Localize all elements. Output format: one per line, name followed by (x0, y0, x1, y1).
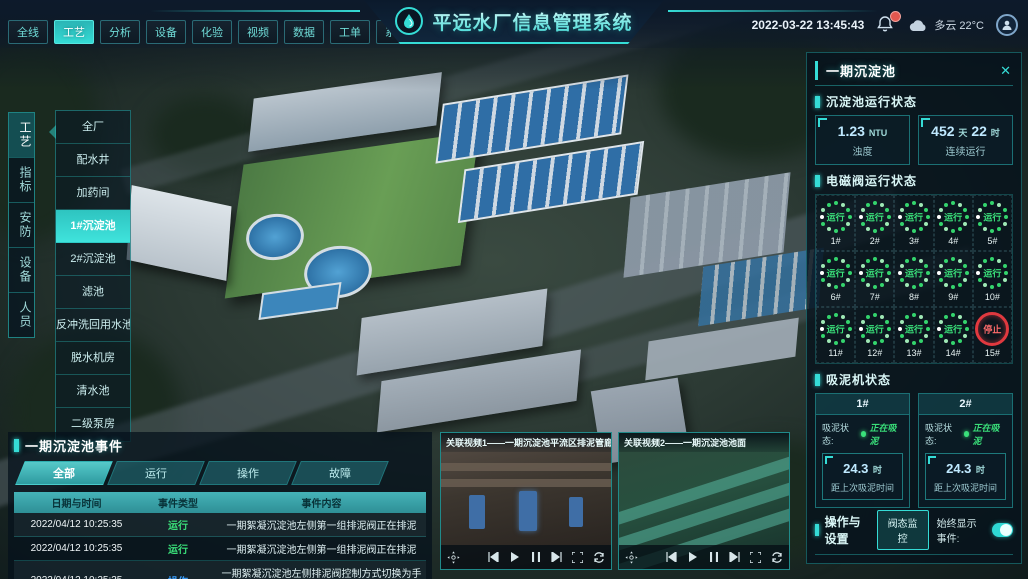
submenu-item-active[interactable]: 1#沉淀池 (56, 210, 130, 243)
suction-hours: 24.3 (946, 461, 971, 476)
valve-indicator-15: 停止15# (973, 307, 1012, 363)
skip-back-icon[interactable] (665, 551, 678, 564)
play-icon[interactable] (508, 551, 521, 564)
turbidity-label: 浊度 (820, 143, 905, 158)
section-valves: 电磁阀运行状态 (815, 172, 1013, 189)
submenu-item[interactable]: 清水池 (56, 375, 130, 408)
panel-title: 一期沉淀池 (815, 61, 896, 80)
thumb-detail (519, 491, 537, 531)
play-icon[interactable] (686, 551, 699, 564)
toggle-knob (1000, 524, 1012, 536)
suction-status-label: 吸泥状态: (925, 421, 961, 447)
table-row[interactable]: 2022/04/12 10:25:35 运行 一期絮凝沉淀池左侧第一组排泥阀正在… (14, 513, 426, 537)
ptz-dpad-icon[interactable] (625, 551, 638, 564)
submenu-item[interactable]: 全厂 (56, 111, 130, 144)
suction-timer-card: 24.3 时 距上次吸泥时间 (925, 453, 1006, 500)
top-right-cluster: 2022-03-22 13:45:43 多云 22°C (752, 14, 1018, 36)
uptime-days: 452 (931, 123, 954, 139)
nav-huayan[interactable]: 化验 (192, 20, 232, 44)
video-title: 关联视频1——一期沉淀池平流区排泥管廊 (441, 433, 611, 452)
nav-shuju[interactable]: 数据 (284, 20, 324, 44)
pause-icon[interactable] (529, 551, 542, 564)
side-tab-gongyi[interactable]: 工艺 (9, 113, 34, 157)
section-tank-status: 沉淀池运行状态 (815, 93, 1013, 110)
valve-indicator-5: 运行5# (973, 195, 1012, 251)
valve-indicator-7: 运行7# (855, 251, 894, 307)
thumb-detail (441, 463, 611, 471)
thumb-detail (569, 497, 583, 527)
suction-state: 正在吸泥 (869, 421, 903, 447)
events-tab-all[interactable]: 全部 (15, 461, 113, 485)
section-title: 操作与设置 (825, 513, 869, 547)
suction-caption: 距上次吸泥时间 (825, 481, 900, 494)
video-controls (441, 545, 611, 569)
nav-quanxian[interactable]: 全线 (8, 20, 48, 44)
status-dot-green (964, 431, 970, 437)
notification-badge (890, 11, 901, 22)
events-tab-run[interactable]: 运行 (107, 461, 205, 485)
events-table-header: 日期与时间 事件类型 事件内容 (14, 492, 426, 513)
section-suction: 吸泥机状态 (815, 371, 1013, 388)
page-title: 平远水厂信息管理系统 (432, 8, 632, 35)
video-title: 关联视频2——一期沉淀池池面 (619, 433, 789, 452)
submenu-item[interactable]: 加药间 (56, 177, 130, 210)
events-tabs: 全部 运行 操作 故障 (14, 461, 426, 485)
events-title-row: 一期沉淀池事件 (14, 436, 426, 455)
valve-indicator-1: 运行1# (816, 195, 855, 251)
detail-panel: 一期沉淀池 ✕ 沉淀池运行状态 1.23 NTU 浊度 452 天 22 时 连… (806, 52, 1022, 564)
suction-cards: 1# 吸泥状态: 正在吸泥 24.3 时 距上次吸泥时间 2# 吸泥状态: 正 (815, 393, 1013, 508)
section-accent (815, 524, 819, 536)
valve-monitor-button[interactable]: 阀态监控 (877, 510, 929, 550)
loop-icon[interactable] (592, 551, 605, 564)
nav-shipin[interactable]: 视频 (238, 20, 278, 44)
section-title: 电磁阀运行状态 (826, 172, 917, 189)
ptz-dpad-icon[interactable] (447, 551, 460, 564)
uptime-card: 452 天 22 时 连续运行 (918, 115, 1013, 165)
process-submenu: 全厂 配水井 加药间 1#沉淀池 2#沉淀池 滤池 反冲洗回用水池 脱水机房 清… (55, 110, 131, 442)
title-decor-line (668, 10, 878, 12)
skip-back-icon[interactable] (487, 551, 500, 564)
valve-indicator-6: 运行6# (816, 251, 855, 307)
suction-state: 正在吸泥 (972, 421, 1006, 447)
suction-id: 1# (816, 394, 909, 415)
turbidity-value: 1.23 (838, 123, 865, 139)
datetime: 2022-03-22 13:45:43 (752, 18, 865, 32)
section-accent (815, 175, 820, 187)
col-type: 事件类型 (139, 492, 217, 513)
always-show-events-label: 始终显示事件: (937, 515, 984, 545)
section-title: 吸泥机状态 (826, 371, 891, 388)
weather-text: 多云 22°C (934, 17, 984, 33)
weather: 多云 22°C (908, 17, 984, 33)
left-tab-rail: 工艺 指标 安防 设备 人员 (8, 112, 35, 338)
thumb-detail (469, 495, 485, 529)
suction-caption: 距上次吸泥时间 (928, 481, 1003, 494)
top-bar: 全线 工艺 分析 设备 化验 视频 数据 工单 系统 平远水厂信息管理系统 20… (0, 0, 1028, 48)
valve-indicator-9: 运行9# (934, 251, 973, 307)
uptime-hours: 22 (971, 123, 987, 139)
valve-indicator-12: 运行12# (855, 307, 894, 363)
nav-shebei[interactable]: 设备 (146, 20, 186, 44)
detail-panel-header: 一期沉淀池 ✕ (815, 59, 1013, 86)
section-accent (815, 96, 820, 108)
suction-timer-card: 24.3 时 距上次吸泥时间 (822, 453, 903, 500)
notifications-bell-icon[interactable] (876, 15, 896, 35)
side-tab-anfang[interactable]: 安防 (9, 202, 34, 247)
tank-status-cards: 1.23 NTU 浊度 452 天 22 时 连续运行 (815, 115, 1013, 165)
title-decor-line (150, 10, 360, 12)
skip-forward-icon[interactable] (550, 551, 563, 564)
side-tab-shebei[interactable]: 设备 (9, 247, 34, 292)
turbidity-unit: NTU (869, 128, 888, 138)
events-panel: 一期沉淀池事件 全部 运行 操作 故障 日期与时间 事件类型 事件内容 2022… (8, 432, 432, 579)
video-controls (619, 545, 789, 569)
nav-gongyi[interactable]: 工艺 (54, 20, 94, 44)
uptime-days-unit: 天 (958, 128, 967, 138)
user-avatar[interactable] (996, 14, 1018, 36)
valve-indicator-8: 运行8# (894, 251, 933, 307)
valve-grid: 运行1#运行2#运行3#运行4#运行5#运行6#运行7#运行8#运行9#运行10… (815, 194, 1013, 364)
suction-machine-2: 2# 吸泥状态: 正在吸泥 24.3 时 距上次吸泥时间 (918, 393, 1013, 508)
top-nav: 全线 工艺 分析 设备 化验 视频 数据 工单 系统 (8, 20, 416, 44)
events-tab-fault[interactable]: 故障 (291, 461, 389, 485)
water-drop-logo-icon (395, 7, 423, 35)
suction-machine-1: 1# 吸泥状态: 正在吸泥 24.3 时 距上次吸泥时间 (815, 393, 910, 508)
section-operations: 操作与设置 阀态监控 始终显示事件: (815, 510, 1013, 555)
events-table-body: 2022/04/12 10:25:35 运行 一期絮凝沉淀池左侧第一组排泥阀正在… (14, 513, 426, 579)
suction-hours: 24.3 (843, 461, 868, 476)
close-icon[interactable]: ✕ (998, 63, 1013, 79)
table-row[interactable]: 2022/04/12 10:25:35 操作 一期絮凝沉淀池左侧排泥阀控制方式切… (14, 561, 426, 579)
col-time: 日期与时间 (14, 492, 139, 513)
suction-status-label: 吸泥状态: (822, 421, 858, 447)
submenu-item[interactable]: 配水井 (56, 144, 130, 177)
thumb-detail (441, 479, 611, 487)
turbidity-card: 1.23 NTU 浊度 (815, 115, 910, 165)
skip-forward-icon[interactable] (728, 551, 741, 564)
dashboard-root: 全线 工艺 分析 设备 化验 视频 数据 工单 系统 平远水厂信息管理系统 20… (0, 0, 1028, 579)
suction-hours-unit: 时 (976, 465, 985, 475)
uptime-hours-unit: 时 (991, 128, 1000, 138)
cloud-icon (908, 18, 928, 32)
valve-indicator-3: 运行3# (894, 195, 933, 251)
col-content: 事件内容 (217, 492, 426, 513)
side-tab-zhibiao[interactable]: 指标 (9, 157, 34, 202)
nav-fenxi[interactable]: 分析 (100, 20, 140, 44)
valve-indicator-2: 运行2# (855, 195, 894, 251)
submenu-item[interactable]: 反冲洗回用水池 (56, 309, 130, 342)
valve-indicator-11: 运行11# (816, 307, 855, 363)
submenu-item[interactable]: 滤池 (56, 276, 130, 309)
video-panel-2[interactable]: 关联视频2——一期沉淀池池面 (618, 432, 790, 570)
scene-building (127, 185, 232, 281)
suction-hours-unit: 时 (873, 465, 882, 475)
fullscreen-icon[interactable] (571, 551, 584, 564)
table-row[interactable]: 2022/04/12 10:25:35 运行 一期絮凝沉淀池左侧第一组排泥阀正在… (14, 537, 426, 561)
pause-icon[interactable] (707, 551, 720, 564)
suction-id: 2# (919, 394, 1012, 415)
fullscreen-icon[interactable] (749, 551, 762, 564)
section-accent (14, 439, 19, 452)
events-tab-operate[interactable]: 操作 (199, 461, 297, 485)
loop-icon[interactable] (770, 551, 783, 564)
side-tab-renyuan[interactable]: 人员 (9, 292, 34, 337)
always-show-events-toggle[interactable] (992, 523, 1013, 537)
submenu-item[interactable]: 2#沉淀池 (56, 243, 130, 276)
section-accent (815, 374, 820, 386)
video-panel-1[interactable]: 关联视频1——一期沉淀池平流区排泥管廊 (440, 432, 612, 570)
uptime-label: 连续运行 (923, 143, 1008, 158)
submenu-item[interactable]: 脱水机房 (56, 342, 130, 375)
app-header: 平远水厂信息管理系统 (364, 0, 664, 44)
valve-indicator-13: 运行13# (894, 307, 933, 363)
section-title: 沉淀池运行状态 (826, 93, 917, 110)
events-title: 一期沉淀池事件 (25, 436, 123, 455)
status-dot-green (861, 431, 867, 437)
valve-indicator-14: 运行14# (934, 307, 973, 363)
valve-indicator-4: 运行4# (934, 195, 973, 251)
nav-gongdan[interactable]: 工单 (330, 20, 370, 44)
valve-indicator-10: 运行10# (973, 251, 1012, 307)
